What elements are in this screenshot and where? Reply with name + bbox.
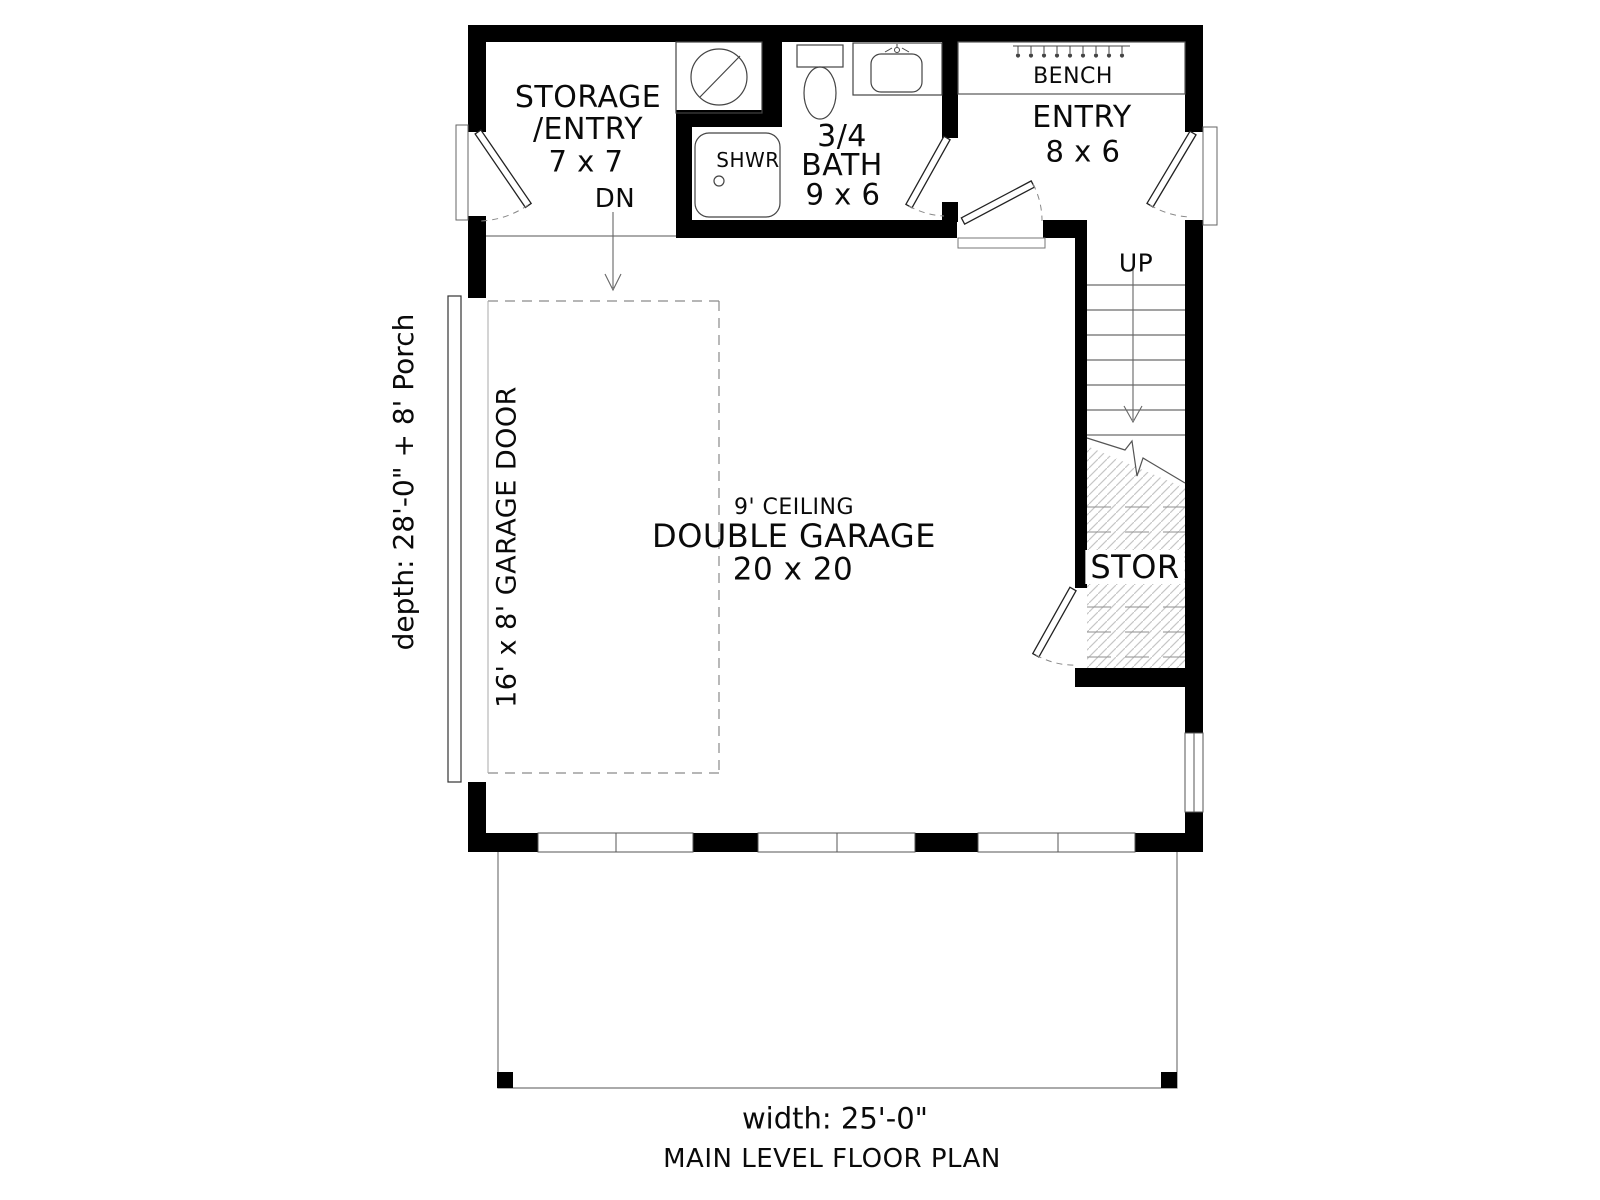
room-label-stor: STOR [1085, 550, 1184, 584]
width-dimension-label: width: 25'-0" [742, 1105, 928, 1134]
right-stoop [1203, 127, 1217, 225]
faucet-icon [885, 44, 909, 53]
porch-post-right [1161, 1072, 1177, 1088]
sink-basin-icon [871, 54, 922, 92]
room-label-bath-line2: BATH [801, 151, 883, 181]
left-stoop [456, 125, 468, 220]
bottom-wall-seg2 [693, 833, 758, 852]
garage-ceiling-label: 9' CEILING [734, 497, 854, 519]
water-heater-diagonal [700, 56, 740, 97]
room-dims-garage: 20 x 20 [733, 555, 853, 586]
room-label-storage-line2: /ENTRY [533, 115, 643, 145]
entry-door-leaf [1147, 131, 1196, 207]
stor-door-swing [1036, 655, 1077, 665]
right-wall-upper [1185, 25, 1203, 132]
storage-door-leaf [475, 130, 531, 207]
down-direction-arrow [605, 212, 621, 290]
entry-garage-wall [1043, 220, 1087, 238]
entry-garage-door-swing [1033, 184, 1042, 221]
windows [538, 733, 1203, 852]
room-dims-entry: 8 x 6 [1046, 138, 1121, 167]
garage-door-size-label: 16' x 8' GARAGE DOOR [494, 386, 521, 708]
porch [497, 852, 1177, 1088]
floor-plan-canvas: STORAGE /ENTRY 7 x 7 DN 3/4 BATH 9 x 6 S… [0, 0, 1600, 1200]
storage-shower-wall [676, 127, 692, 220]
shower-pan-icon [695, 133, 780, 217]
stair-left-wall [1075, 238, 1087, 588]
room-label-storage-line1: STORAGE [515, 83, 661, 113]
up-direction-arrow [1124, 268, 1142, 422]
annotation-dn: DN [595, 186, 635, 212]
stair-treads [1087, 285, 1185, 435]
entry-garage-threshold [958, 238, 1045, 248]
annotation-bench: BENCH [1033, 66, 1113, 88]
left-wall-mid [468, 216, 486, 298]
bath-entry-wall [942, 42, 958, 138]
coat-hooks-icon [1013, 46, 1130, 57]
entry-door-swing [1150, 205, 1190, 217]
bath-garage-wall [676, 220, 957, 238]
room-label-entry: ENTRY [1032, 103, 1131, 133]
vanity-counter-icon [853, 43, 942, 95]
room-dims-storage: 7 x 7 [549, 148, 624, 177]
shower-drain-icon [714, 176, 724, 186]
top-wall [468, 25, 1203, 42]
left-wall-upper [468, 25, 486, 132]
bottom-wall-seg3 [915, 833, 978, 852]
annotation-shwr: SHWR [716, 150, 779, 170]
stor-door-leaf [1033, 587, 1076, 657]
toilet-tank-icon [797, 45, 843, 67]
storage-door-swing [481, 205, 528, 221]
toilet-bowl-icon [804, 67, 836, 119]
porch-outline [498, 852, 1177, 1088]
right-wall-mid [1185, 220, 1203, 733]
annotation-up: UP [1119, 251, 1153, 276]
depth-dimension-label: depth: 28'-0" + 8' Porch [390, 314, 418, 651]
stair-bottom-wall [1075, 668, 1187, 687]
staircase [1087, 268, 1185, 668]
bottom-wall-seg1 [468, 833, 538, 852]
bath-door-leaf [906, 136, 950, 208]
porch-post-left [497, 1072, 513, 1088]
entry-garage-door-leaf [961, 181, 1034, 224]
bottom-wall-seg4 [1135, 833, 1203, 852]
garage-door-panel [448, 296, 461, 782]
room-dims-bath: 9 x 6 [806, 181, 881, 210]
plan-title: MAIN LEVEL FLOOR PLAN [663, 1146, 1001, 1172]
room-label-garage: DOUBLE GARAGE [652, 520, 936, 552]
floor-plan-drawing [0, 0, 1600, 1200]
bath-door-swing [909, 206, 944, 216]
bath-entry-post [942, 202, 958, 222]
window-front-3 [978, 833, 1135, 852]
